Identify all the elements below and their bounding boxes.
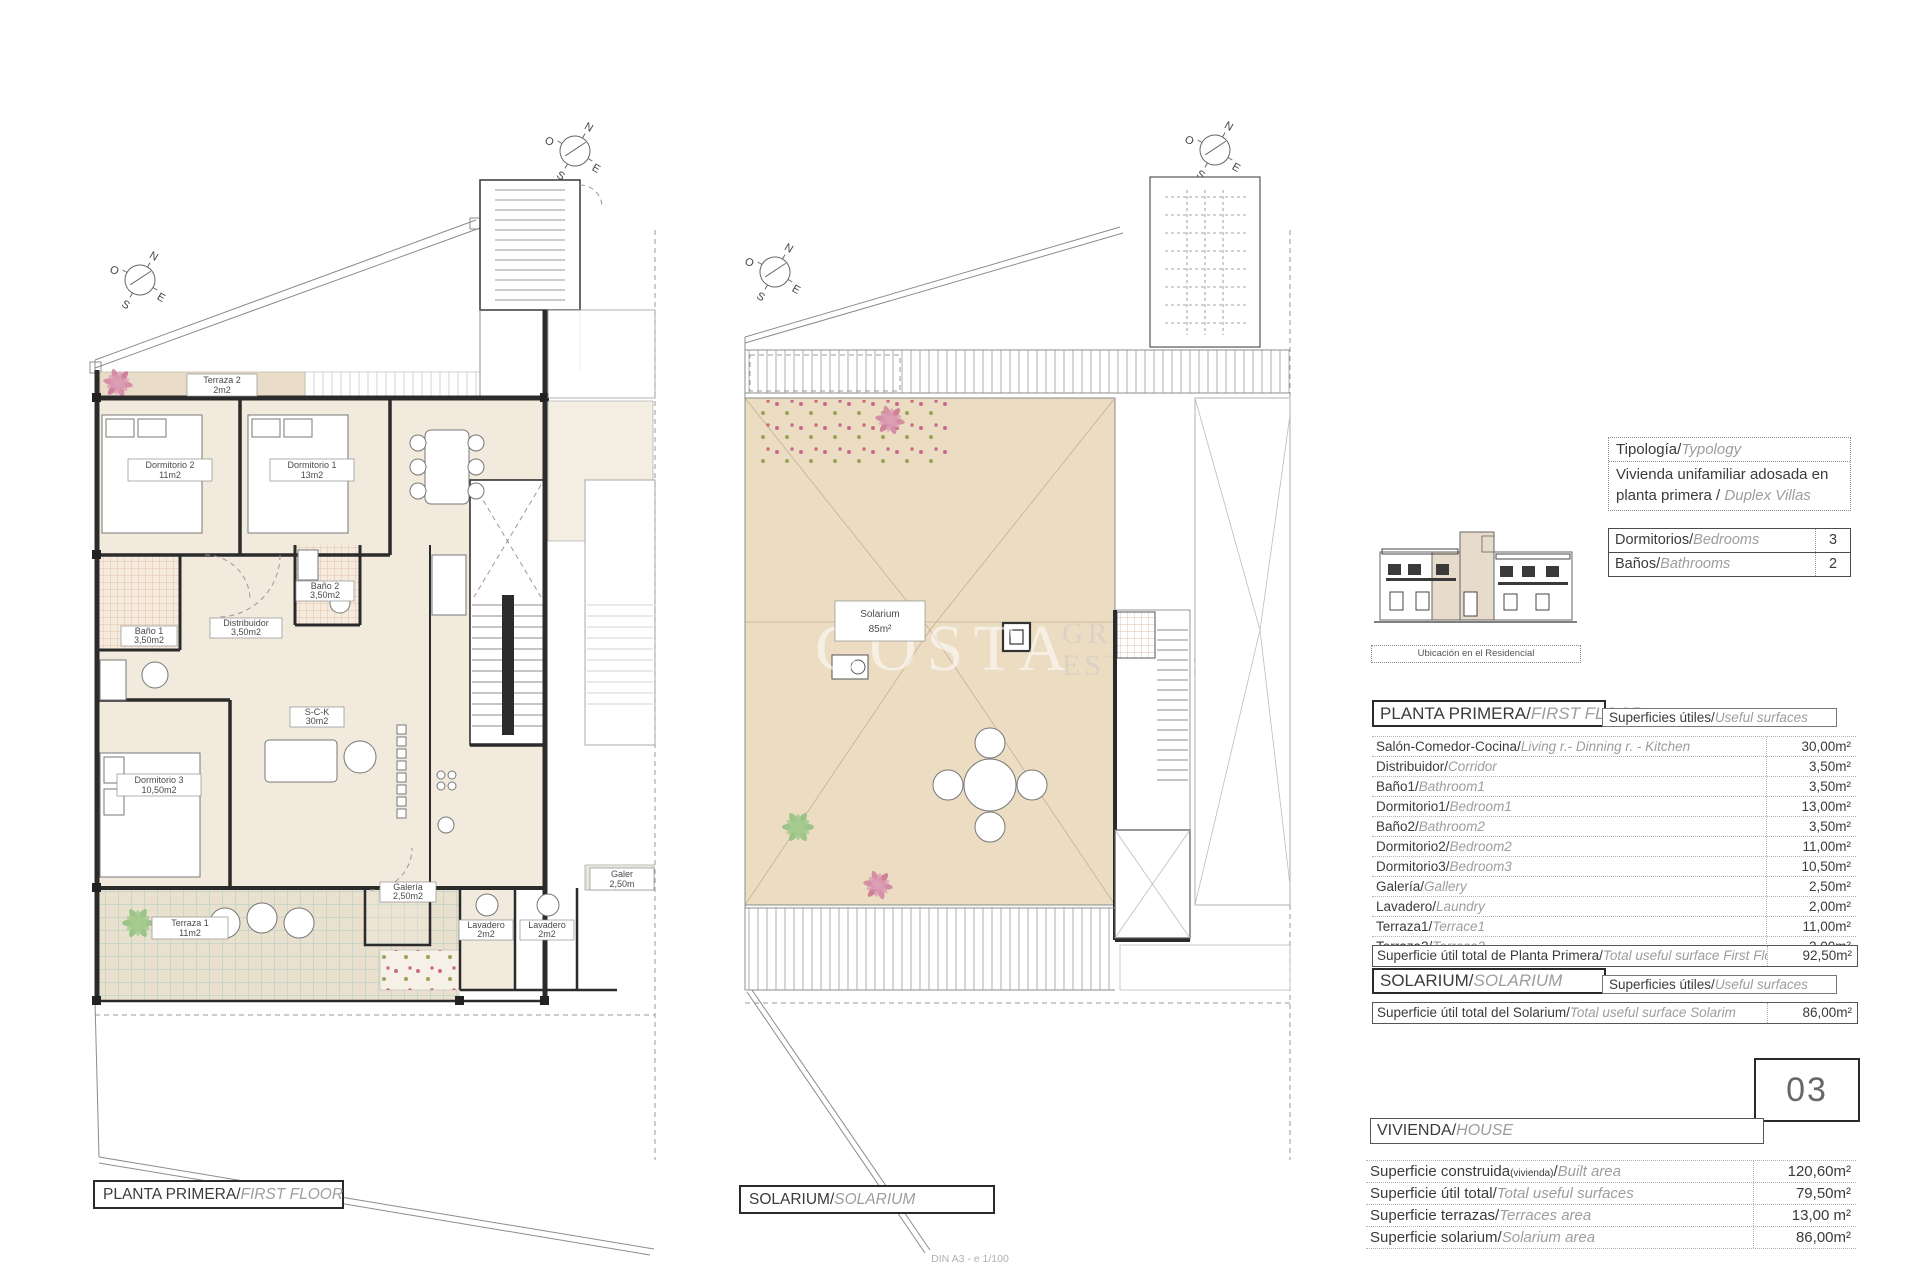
- caption-es: PLANTA PRIMERA/: [103, 1186, 241, 1203]
- surfaces-label-es: Superficies útiles/: [1609, 977, 1715, 992]
- row-value: 2,50m²: [1766, 877, 1856, 896]
- row-label-en: Laundry: [1436, 899, 1485, 914]
- compass-n: N: [782, 241, 795, 255]
- stair-tower: [1150, 177, 1260, 347]
- table-row: Dormitorio3/Bedroom310,50m²: [1372, 857, 1856, 877]
- neighbour-terrace-band: [305, 372, 480, 398]
- row-value: 11,00m²: [1766, 837, 1856, 856]
- bedrooms-row: Dormitorios/Bedrooms 3: [1609, 529, 1850, 552]
- svg-text:2m2: 2m2: [538, 929, 556, 939]
- stair-core: [1115, 610, 1190, 940]
- room-label: Lavadero 2m2: [459, 920, 513, 940]
- typology-value: Vivienda unifamiliar adosada en planta p…: [1609, 462, 1850, 510]
- bedrooms-count: 3: [1815, 529, 1850, 552]
- row-label-en: Terraces area: [1499, 1207, 1591, 1224]
- total-label-es: Superficie útil total de Planta Primera/: [1377, 948, 1603, 963]
- svg-text:3,50m2: 3,50m2: [134, 635, 164, 645]
- total-value: 92,50m²: [1767, 946, 1857, 966]
- surfaces-label-en: Useful surfaces: [1715, 977, 1808, 992]
- table-row: Baño2/Bathroom23,50m²: [1372, 817, 1856, 837]
- row-value: 30,00m²: [1766, 737, 1856, 756]
- typology-label-es: Tipología/: [1616, 441, 1681, 458]
- row-label-en: Corridor: [1448, 759, 1497, 774]
- row-value: 10,50m²: [1766, 857, 1856, 876]
- row-label-es: Dormitorio1/: [1376, 799, 1450, 814]
- row-value: 13,00 m²: [1753, 1205, 1856, 1226]
- building-elevation: [1372, 522, 1579, 627]
- first-floor-header-es: PLANTA PRIMERA/: [1380, 704, 1531, 723]
- compass-o: O: [542, 134, 556, 149]
- solarium-total-row: Superficie útil total del Solarium/Total…: [1372, 1002, 1858, 1024]
- row-label-es: Baño1/: [1376, 779, 1419, 794]
- table-row: Galería/Gallery2,50m²: [1372, 877, 1856, 897]
- compass-icon: N E S O: [95, 236, 183, 326]
- solarium-header-en: SOLARIUM: [1474, 971, 1563, 990]
- row-label-small: (vivienda): [1510, 1168, 1553, 1179]
- room-label: Dormitorio 1 13m2: [270, 459, 354, 481]
- room-label: Terraza 2 2m2: [187, 374, 257, 396]
- compass-s: S: [754, 290, 766, 304]
- row-label-en: Bedroom3: [1450, 859, 1512, 874]
- room-label: Solarium 85m²: [835, 601, 925, 641]
- row-value: 79,50m²: [1753, 1183, 1856, 1204]
- room-label: Lavadero 2m2: [520, 920, 574, 940]
- total-label-es: Superficie útil total del Solarium/: [1377, 1005, 1570, 1020]
- room-label: Dormitorio 3 10,50m2: [117, 774, 201, 796]
- table-row: Baño1/Bathroom13,50m²: [1372, 777, 1856, 797]
- scale-note: DIN A3 - e 1/100: [890, 1253, 1050, 1265]
- typology-label-en: Typology: [1681, 441, 1741, 458]
- row-label-es: Lavadero/: [1376, 899, 1436, 914]
- svg-text:2,50m: 2,50m: [609, 879, 634, 889]
- compass-o: O: [1182, 133, 1196, 148]
- svg-text:3,50m2: 3,50m2: [310, 590, 340, 600]
- row-value: 3,50m²: [1766, 817, 1856, 836]
- total-label-en: Total useful surface First Floor: [1603, 948, 1767, 963]
- svg-text:2m2: 2m2: [213, 385, 231, 395]
- surfaces-label-en: Useful surfaces: [1715, 710, 1808, 725]
- compass-e: E: [790, 283, 802, 297]
- neighbour-solarium: [1195, 398, 1290, 905]
- deck-band: [745, 350, 1290, 393]
- row-label-es: Dormitorio2/: [1376, 839, 1450, 854]
- table-row: Superficie construida(vivienda)/Built ar…: [1366, 1160, 1856, 1183]
- caption-es: SOLARIUM/: [749, 1191, 834, 1208]
- typology-value-en: Duplex Villas: [1724, 487, 1810, 504]
- compass-n: N: [582, 120, 595, 134]
- room-label: Terraza 1 11m2: [152, 917, 228, 939]
- row-label-en: Built area: [1558, 1163, 1621, 1180]
- row-label-es: Terraza1/: [1376, 919, 1432, 934]
- table-row: Lavadero/Laundry2,00m²: [1372, 897, 1856, 917]
- caption-en: FIRST FLOOR: [241, 1186, 343, 1203]
- row-label-es: Superficie construida: [1370, 1163, 1510, 1180]
- house-summary-table: Superficie construida(vivienda)/Built ar…: [1366, 1160, 1856, 1249]
- bedrooms-label-es: Dormitorios/: [1615, 532, 1693, 548]
- svg-text:85m²: 85m²: [869, 624, 892, 635]
- table-row: Dormitorio1/Bedroom113,00m²: [1372, 797, 1856, 817]
- compass-icon: N E S O: [730, 228, 818, 318]
- room-label: Distribuidor 3,50m2: [210, 618, 282, 638]
- sheet: N E S O N E S O: [0, 0, 1920, 1280]
- svg-text:Dormitorio 2: Dormitorio 2: [145, 460, 194, 470]
- row-label-en: Bedroom2: [1450, 839, 1512, 854]
- compass-n: N: [147, 249, 160, 263]
- solarium-plan: N E S O N E S O: [700, 85, 1320, 1265]
- typology-box: Tipología/Typology Vivienda unifamiliar …: [1608, 437, 1851, 511]
- row-label-en: Bathroom1: [1419, 779, 1485, 794]
- row-value: 11,00m²: [1766, 917, 1856, 936]
- svg-text:Dormitorio 3: Dormitorio 3: [134, 775, 183, 785]
- svg-text:11m2: 11m2: [159, 470, 181, 480]
- house-header: VIVIENDA/HOUSE: [1370, 1118, 1764, 1144]
- table-row: Salón-Comedor-Cocina/Living r.- Dinning …: [1372, 736, 1856, 757]
- first-floor-surfaces-table: Salón-Comedor-Cocina/Living r.- Dinning …: [1372, 736, 1856, 957]
- table-row: Dormitorio2/Bedroom211,00m²: [1372, 837, 1856, 857]
- first-floor-table-header: PLANTA PRIMERA/FIRST FLOOR: [1372, 700, 1606, 727]
- room-label: Baño 1 3,50m2: [121, 626, 177, 646]
- room-label: Galería 2,50m2: [380, 882, 436, 902]
- total-label-en: Total useful surface Solarim: [1570, 1005, 1736, 1020]
- svg-text:Galer: Galer: [611, 869, 633, 879]
- svg-text:Dormitorio 1: Dormitorio 1: [287, 460, 336, 470]
- first-floor-plan: N E S O N E S O: [40, 85, 680, 1265]
- typology-title: Tipología/Typology: [1609, 438, 1850, 462]
- svg-text:11m2: 11m2: [179, 928, 201, 938]
- bathrooms-count: 2: [1815, 553, 1850, 576]
- bathrooms-label-en: Bathrooms: [1660, 556, 1730, 572]
- row-label-es: Baño2/: [1376, 819, 1419, 834]
- useful-surfaces-box: Superficies útiles/Useful surfaces: [1602, 708, 1837, 727]
- row-value: 86,00m²: [1753, 1227, 1856, 1248]
- row-value: 120,60m²: [1753, 1161, 1856, 1182]
- table-row: Terraza1/Terrace111,00m²: [1372, 917, 1856, 937]
- compass-s: S: [119, 298, 131, 312]
- row-value: 2,00m²: [1766, 897, 1856, 916]
- solarium-caption: SOLARIUM/SOLARIUM: [739, 1185, 995, 1214]
- solarium-table-header: SOLARIUM/SOLARIUM: [1372, 968, 1606, 994]
- row-label-es: Superficie útil total/: [1370, 1185, 1497, 1202]
- first-floor-total-row: Superficie útil total de Planta Primera/…: [1372, 945, 1858, 967]
- bathrooms-row: Baños/Bathrooms 2: [1609, 552, 1850, 576]
- row-label-es: Superficie terrazas/: [1370, 1207, 1499, 1224]
- compass-o: O: [107, 263, 121, 278]
- svg-text:2m2: 2m2: [477, 929, 495, 939]
- svg-text:13m2: 13m2: [301, 470, 324, 480]
- row-label-es: Galería/: [1376, 879, 1424, 894]
- first-floor-caption: PLANTA PRIMERA/FIRST FLOOR: [93, 1180, 344, 1209]
- row-value: 3,50m²: [1766, 777, 1856, 796]
- row-label-es: Superficie solarium/: [1370, 1229, 1502, 1246]
- compass-e: E: [155, 291, 167, 305]
- svg-text:2,50m2: 2,50m2: [393, 891, 423, 901]
- row-label-en: Terrace1: [1432, 919, 1485, 934]
- room-label: S-C-K 30m2: [290, 707, 344, 727]
- house-header-en: HOUSE: [1456, 1122, 1513, 1139]
- table-row: Distribuidor/Corridor3,50m²: [1372, 757, 1856, 777]
- row-label-es: Distribuidor/: [1376, 759, 1448, 774]
- row-label-en: Bedroom1: [1450, 799, 1512, 814]
- total-value: 86,00m²: [1767, 1003, 1857, 1023]
- house-header-es: VIVIENDA/: [1377, 1122, 1456, 1139]
- svg-text:30m2: 30m2: [306, 716, 329, 726]
- counts-table: Dormitorios/Bedrooms 3 Baños/Bathrooms 2: [1608, 528, 1851, 577]
- row-value: 13,00m²: [1766, 797, 1856, 816]
- bathrooms-label-es: Baños/: [1615, 556, 1660, 572]
- unit-number-box: 03: [1754, 1058, 1860, 1122]
- row-label-en: Solarium area: [1502, 1229, 1595, 1246]
- useful-surfaces-box: Superficies útiles/Useful surfaces: [1602, 975, 1837, 994]
- compass-n: N: [1222, 119, 1235, 133]
- svg-text:Solarium: Solarium: [860, 609, 899, 620]
- svg-text:10,50m2: 10,50m2: [141, 785, 176, 795]
- location-label: Ubicación en el Residencial: [1371, 645, 1581, 663]
- room-label: Baño 2 3,50m2: [296, 581, 354, 601]
- surfaces-label-es: Superficies útiles/: [1609, 710, 1715, 725]
- row-label-es: Dormitorio3/: [1376, 859, 1450, 874]
- row-label-en: Bathroom2: [1419, 819, 1485, 834]
- row-label-en: Living r.- Dinning r. - Kitchen: [1521, 739, 1690, 754]
- room-label: Galer 2,50m: [590, 868, 654, 890]
- table-row: Superficie terrazas/Terraces area 13,00 …: [1366, 1205, 1856, 1227]
- neighbour-unit: [548, 310, 655, 890]
- row-label-es: Salón-Comedor-Cocina/: [1376, 739, 1521, 754]
- compass-e: E: [590, 162, 602, 176]
- solarium-header-es: SOLARIUM/: [1380, 971, 1474, 990]
- row-label-en: Gallery: [1424, 879, 1467, 894]
- compass-o: O: [742, 255, 756, 270]
- row-value: 3,50m²: [1766, 757, 1856, 776]
- table-row: Superficie solarium/Solarium area 86,00m…: [1366, 1227, 1856, 1249]
- room-label: Dormitorio 2 11m2: [128, 459, 212, 481]
- svg-text:Terraza 1: Terraza 1: [171, 918, 209, 928]
- svg-text:Terraza 2: Terraza 2: [203, 375, 241, 385]
- svg-text:3,50m2: 3,50m2: [231, 627, 261, 637]
- row-label-en: Total useful surfaces: [1497, 1185, 1634, 1202]
- bedrooms-label-en: Bedrooms: [1693, 532, 1759, 548]
- compass-e: E: [1230, 161, 1242, 175]
- caption-en: SOLARIUM: [834, 1191, 915, 1208]
- table-row: Superficie útil total/Total useful surfa…: [1366, 1183, 1856, 1205]
